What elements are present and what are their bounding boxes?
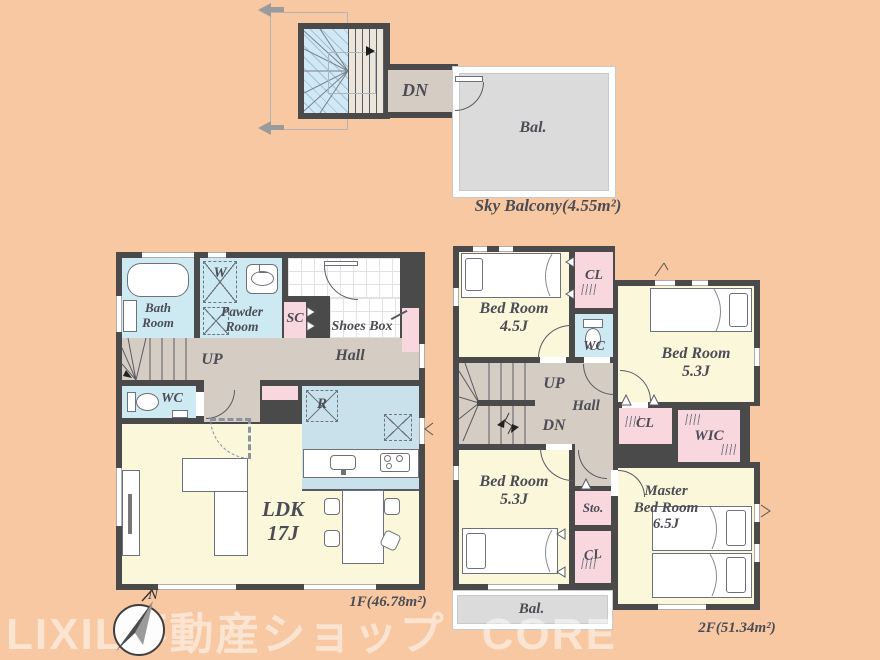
toilet-paper-box xyxy=(172,410,188,418)
bed-fold-line xyxy=(540,530,554,572)
sink-icon xyxy=(251,271,274,286)
f2-balcony-floor xyxy=(457,595,608,624)
roof-corridor-floor xyxy=(388,70,456,112)
toilet-tank-icon xyxy=(583,319,603,328)
toilet-bowl-icon xyxy=(585,328,601,350)
window xyxy=(658,604,706,610)
bed-fold-line xyxy=(708,507,722,549)
f2-caption: 2F(51.34m²) xyxy=(672,618,802,638)
f1-wc-door-gap xyxy=(196,392,204,416)
sofa-vertical xyxy=(214,491,248,556)
fold-door-mark xyxy=(648,394,660,406)
bed-pillow xyxy=(466,533,486,569)
f1-shoes-box xyxy=(402,308,419,352)
window xyxy=(453,288,459,306)
fold-door-mark xyxy=(306,306,316,318)
window xyxy=(142,252,194,258)
door-gap xyxy=(611,470,618,496)
window xyxy=(754,544,760,562)
f1-ldk-room xyxy=(122,424,302,584)
window xyxy=(473,246,487,252)
entry-arrow-icon xyxy=(760,504,772,518)
fold-door-mark xyxy=(556,566,566,578)
fold-door-mark xyxy=(306,320,316,332)
hatch-mark xyxy=(580,284,596,295)
stove-burner-icon xyxy=(386,463,392,469)
kitchen-storage-box xyxy=(384,414,412,441)
kitchen-sink-icon xyxy=(330,455,356,470)
sink-tap-icon xyxy=(259,264,268,273)
powder-storage-box xyxy=(203,307,229,335)
bed-fold-line xyxy=(712,289,726,331)
chair xyxy=(384,498,400,515)
floor-plan-canvas: DN Bal. Sky Balcony(4.55m²) xyxy=(0,0,880,660)
f2-sto xyxy=(575,491,611,525)
hatch-mark xyxy=(720,444,736,455)
window xyxy=(692,280,708,286)
hatch-mark xyxy=(684,414,700,425)
window xyxy=(754,348,760,366)
f1-entrance-porch-lower xyxy=(330,298,400,338)
washer-box xyxy=(203,261,237,303)
bath-counter xyxy=(123,300,137,332)
bed-pillow xyxy=(726,510,746,546)
f2-wall-notch xyxy=(750,406,762,462)
toilet-bowl-icon xyxy=(136,393,159,411)
stair-direction-arrow-icon xyxy=(366,46,376,56)
fold-door-mark xyxy=(580,478,592,490)
f1-sc-closet xyxy=(284,302,306,338)
bed-fold-line xyxy=(708,554,722,596)
bathtub xyxy=(127,263,189,297)
north-label: N xyxy=(147,587,159,603)
roof-arrow-icon xyxy=(258,2,284,18)
roof-arrow-icon xyxy=(258,120,284,136)
compass-icon: N xyxy=(106,584,172,660)
window xyxy=(655,280,675,286)
f1-porch-wall xyxy=(282,296,330,302)
window xyxy=(116,296,122,332)
stove-burner-icon xyxy=(384,455,391,462)
stairwell-outline xyxy=(328,52,376,94)
bed-fold-line xyxy=(540,254,554,296)
f2-stairs-icon xyxy=(459,363,535,444)
f1-stairs-icon xyxy=(122,338,198,380)
window xyxy=(499,246,513,252)
toilet-tank-icon xyxy=(127,392,136,412)
kitchen-tap-icon xyxy=(341,470,346,475)
refrigerator-box xyxy=(306,390,338,422)
stove-burner-icon xyxy=(396,455,403,462)
window xyxy=(419,344,425,368)
hatch-mark xyxy=(624,416,640,427)
door-gap xyxy=(584,357,610,363)
bed-pillow xyxy=(729,293,748,327)
dining-table xyxy=(342,490,384,564)
f1-hall-closet xyxy=(262,386,298,400)
fold-door-mark xyxy=(565,256,575,268)
window xyxy=(208,252,226,258)
bed-pillow xyxy=(726,557,746,593)
tv-icon xyxy=(128,494,132,534)
f1-hall-floor xyxy=(198,338,419,380)
entry-arrow-icon xyxy=(424,422,434,436)
bed-pillow xyxy=(465,258,483,291)
fold-door-mark xyxy=(565,288,575,300)
hatch-mark xyxy=(580,558,596,569)
window xyxy=(304,584,376,590)
f1-caption: 1F(46.78m²) xyxy=(328,592,448,612)
fold-door-mark xyxy=(620,394,632,406)
roof-vent-icon xyxy=(654,262,670,278)
window xyxy=(453,466,459,480)
f2-cl-top xyxy=(575,252,613,308)
sofa-horizontal xyxy=(182,458,248,492)
chair xyxy=(324,530,340,547)
window xyxy=(488,584,558,590)
f2-cl-bottom xyxy=(575,531,611,583)
chair xyxy=(324,498,340,515)
fold-door-mark xyxy=(556,528,566,540)
window xyxy=(116,468,122,526)
